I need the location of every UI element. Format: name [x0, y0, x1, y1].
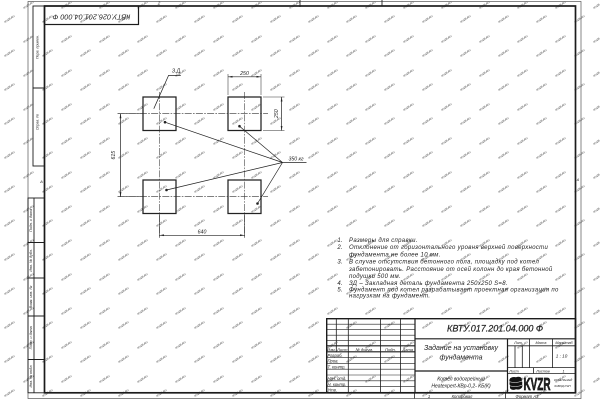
svg-text:2.: 2.: [336, 245, 343, 251]
svg-text:Взам. инв. №: Взам. инв. №: [29, 286, 33, 309]
svg-text:№ докум.: № докум.: [356, 347, 374, 352]
svg-text:Подп.: Подп.: [385, 347, 396, 352]
svg-text:Отклонение от горизонтального: Отклонение от горизонтального уровня вер…: [349, 244, 548, 251]
svg-text:3.: 3.: [337, 260, 343, 266]
svg-text:КВТУ.017.201.04.000 Ф: КВТУ.017.201.04.000 Ф: [447, 323, 543, 333]
svg-text:640: 640: [198, 229, 207, 235]
svg-text:В случае отсутствия бетонного: В случае отсутствия бетонного пола, площ…: [349, 260, 539, 266]
svg-text:А: А: [39, 179, 43, 184]
svg-text:Инв. № дубл.: Инв. № дубл.: [29, 249, 33, 272]
svg-text:4.: 4.: [337, 281, 343, 287]
svg-text:615: 615: [111, 151, 117, 160]
svg-text:ЗД – Закладная деталь фундамен: ЗД – Закладная деталь фундамента 250х250…: [349, 281, 508, 287]
svg-text:фундамента: фундамента: [440, 354, 483, 362]
svg-text:Подп. и дата: Подп. и дата: [29, 209, 33, 232]
svg-text:Т. контр.: Т. контр.: [328, 365, 346, 370]
svg-text:2: 2: [157, 1, 161, 6]
svg-text:З.Д: З.Д: [172, 69, 181, 75]
svg-text:Нач. отд.: Нач. отд.: [328, 376, 347, 381]
svg-text:250: 250: [239, 71, 249, 77]
svg-text:1 : 10: 1 : 10: [556, 354, 568, 359]
svg-text:Утв.: Утв.: [328, 388, 338, 393]
svg-text:Лист: Лист: [336, 347, 348, 352]
svg-text:Перв. примен.: Перв. примен.: [36, 35, 40, 59]
svg-text:Копировал: Копировал: [452, 394, 473, 399]
svg-text:Масса: Масса: [536, 341, 547, 345]
svg-text:KVZR: KVZR: [524, 374, 551, 394]
svg-text:5.: 5.: [337, 287, 343, 293]
svg-text:Пров.: Пров.: [328, 359, 339, 364]
svg-text:Н. контр.: Н. контр.: [328, 382, 347, 387]
svg-text:Справ. №: Справ. №: [36, 114, 40, 130]
svg-text:Котел водогрейный: Котел водогрейный: [437, 376, 485, 383]
svg-text:Подп. и дата: Подп. и дата: [29, 326, 33, 349]
svg-text:Масштаб: Масштаб: [555, 341, 573, 345]
svg-text:Лист: Лист: [508, 370, 519, 374]
svg-text:Разраб.: Разраб.: [328, 353, 343, 358]
svg-text:Лит.: Лит.: [513, 341, 523, 345]
svg-text:Задание на установку: Задание на установку: [424, 344, 499, 352]
svg-text:Heatexpert-КВр-0,2- КБ(К): Heatexpert-КВр-0,2- КБ(К): [431, 383, 491, 389]
svg-text:А: А: [576, 178, 580, 182]
svg-text:250: 250: [274, 109, 280, 119]
svg-text:Размеры для справки.: Размеры для справки.: [349, 238, 418, 244]
svg-text:ЗАВОД РЭП: ЗАВОД РЭП: [554, 384, 571, 388]
svg-text:забетонировать. Расстояние от: забетонировать. Расстояние от осей колон…: [348, 266, 553, 273]
svg-text:подушки 500 мм.: подушки 500 мм.: [349, 274, 401, 280]
svg-text:КОТЕЛЬНЫЙ: КОТЕЛЬНЫЙ: [554, 378, 573, 382]
svg-text:350 кг: 350 кг: [288, 157, 304, 163]
svg-text:Изм.: Изм.: [327, 347, 336, 352]
svg-text:фундамента не более 10 мм.: фундамента не более 10 мм.: [349, 252, 441, 258]
svg-text:Фундамент под котел разрабатыв: Фундамент под котел разрабатывает проект…: [349, 287, 559, 293]
svg-text:КВТУ.026.201.04.000 Ф: КВТУ.026.201.04.000 Ф: [52, 12, 130, 21]
svg-text:нагрузкам на фундамент.: нагрузкам на фундамент.: [349, 293, 430, 299]
svg-text:1: 1: [428, 394, 430, 399]
svg-text:1.: 1.: [337, 238, 343, 244]
svg-text:Дата: Дата: [401, 347, 413, 352]
svg-text:Формат А3: Формат А3: [516, 394, 540, 399]
svg-text:1: 1: [562, 370, 564, 374]
svg-text:Листов: Листов: [535, 370, 550, 374]
svg-text:Инв. № подл.: Инв. № подл.: [29, 365, 33, 388]
